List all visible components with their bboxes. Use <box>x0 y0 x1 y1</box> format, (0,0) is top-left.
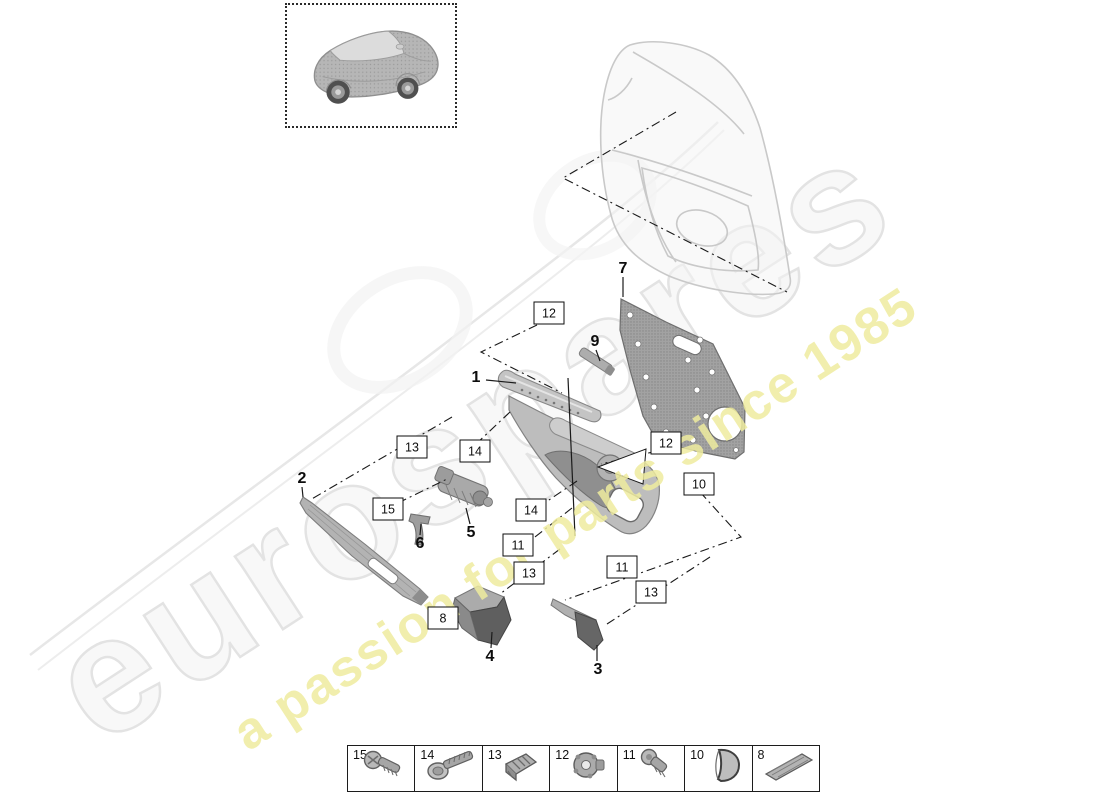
legend-item-14[interactable]: 14 <box>415 746 482 791</box>
callout-box-item-15[interactable]: 15 <box>373 498 404 521</box>
callout-box-item-8[interactable]: 8 <box>428 607 459 630</box>
parts-diagram-page: eurospares <box>0 0 1100 800</box>
callout-part-7[interactable]: 7 <box>619 261 628 277</box>
legend-item-11[interactable]: 11 <box>618 746 685 791</box>
short-screw-icon <box>627 744 683 791</box>
callout-box-item-13[interactable]: 13 <box>397 436 428 459</box>
callout-box-item-11[interactable]: 11 <box>503 534 534 557</box>
legend-item-12[interactable]: 12 <box>550 746 617 791</box>
callout-part-5[interactable]: 5 <box>467 525 476 541</box>
trim-strip-icon <box>758 744 818 791</box>
callout-box-item-14[interactable]: 14 <box>516 499 547 522</box>
pan-head-screw-icon <box>357 744 413 791</box>
callout-part-1[interactable]: 1 <box>472 370 481 386</box>
callout-box-item-12[interactable]: 12 <box>651 432 682 455</box>
trim-cap-icon <box>695 744 751 791</box>
grommet-nut-icon <box>560 744 616 791</box>
vehicle-thumbnail-box <box>285 3 457 128</box>
porsche-panamera-icon <box>287 5 455 126</box>
legend-item-10[interactable]: 10 <box>685 746 752 791</box>
part-3-end-cap[interactable] <box>551 599 603 650</box>
callout-box-item-11[interactable]: 11 <box>607 556 638 579</box>
callout-box-item-14[interactable]: 14 <box>460 440 491 463</box>
callout-part-9[interactable]: 9 <box>591 334 600 350</box>
washer-head-screw-icon <box>423 744 481 791</box>
diagram-artwork: eurospares <box>0 0 1100 800</box>
spring-clip-icon <box>492 744 548 791</box>
legend-item-8[interactable]: 8 <box>753 746 819 791</box>
callout-part-3[interactable]: 3 <box>594 662 603 678</box>
callout-box-item-13[interactable]: 13 <box>514 562 545 585</box>
legend-item-15[interactable]: 15 <box>348 746 415 791</box>
legend-item-13[interactable]: 13 <box>483 746 550 791</box>
callout-box-item-12[interactable]: 12 <box>534 302 565 325</box>
callout-box-item-10[interactable]: 10 <box>684 473 715 496</box>
callout-part-6[interactable]: 6 <box>416 536 425 552</box>
fastener-legend: 1514131211108 <box>347 745 820 792</box>
callout-part-4[interactable]: 4 <box>486 649 495 665</box>
callout-box-item-13[interactable]: 13 <box>636 581 667 604</box>
callout-part-2[interactable]: 2 <box>298 471 307 487</box>
